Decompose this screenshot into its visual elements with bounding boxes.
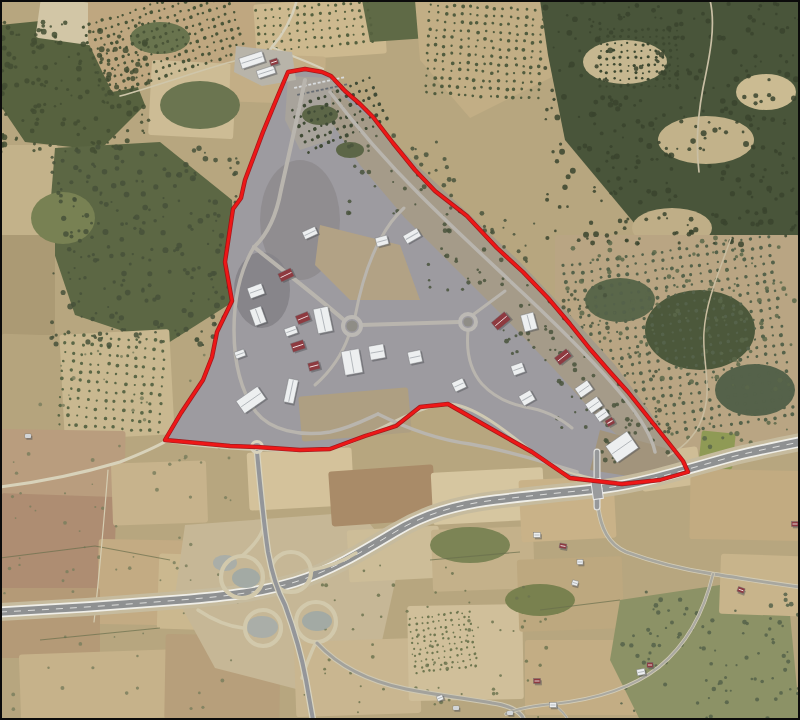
spoil-heap [302,611,332,631]
roundabout-island [346,320,357,331]
field-patch [505,584,575,616]
field-patch [19,649,171,720]
orthophoto-map [0,0,800,720]
field-patch [0,235,55,335]
spoil-heap [246,616,278,638]
white-roof-warehouse [407,349,424,365]
field-patch [430,527,510,563]
zone-ground-patch [336,142,364,158]
field-patch [736,74,796,110]
field-patch [407,604,524,701]
field-patch [111,460,208,525]
white-roof-warehouse [368,344,387,362]
aerial-map-screenshot [0,0,800,720]
spoil-heap [232,568,260,588]
field-patch [160,81,240,129]
roundabout-island [463,317,472,326]
field-patch [645,290,755,370]
field-patch [689,469,800,541]
red-roof-house [559,543,568,551]
field-patch [583,40,667,84]
